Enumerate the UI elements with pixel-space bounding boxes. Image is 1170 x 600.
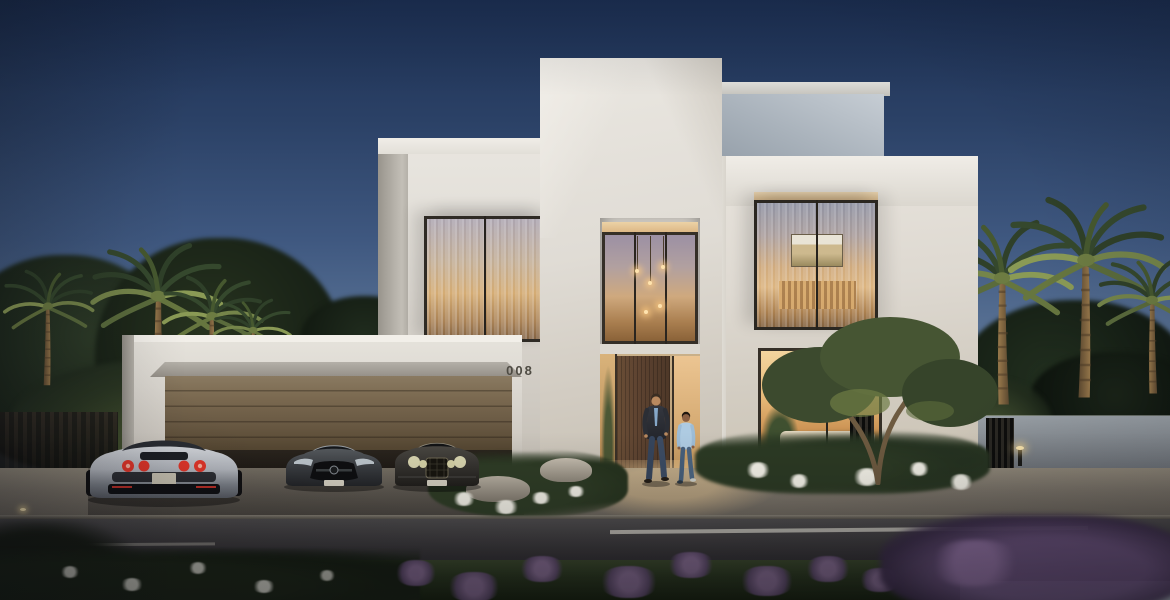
palm-tree xyxy=(1099,259,1170,393)
entrance-soffit-glow xyxy=(602,222,698,232)
villa-dusk-scene: 008 xyxy=(0,0,1170,600)
left-wing-window xyxy=(424,216,544,342)
window-mullion xyxy=(816,200,818,330)
purple-flower-cluster xyxy=(600,566,658,598)
white-flower-cluster xyxy=(188,562,208,574)
purple-flower-cluster xyxy=(740,566,794,596)
entrance-tall-window xyxy=(602,232,698,344)
palm-tree xyxy=(5,271,93,385)
dark-sedan-car xyxy=(390,430,484,492)
olive-tree xyxy=(760,315,1000,485)
white-flower-cluster xyxy=(60,566,80,578)
bollard-light-glow xyxy=(1016,446,1024,450)
landscape-rock xyxy=(540,458,592,482)
purple-flower-cluster xyxy=(520,556,564,582)
purple-flower-cluster xyxy=(448,572,500,600)
pendant-light xyxy=(650,236,651,282)
spandrel-band xyxy=(600,344,700,354)
purple-flower-cluster xyxy=(396,560,436,586)
house-number: 008 xyxy=(498,362,542,380)
white-flower-cluster xyxy=(492,500,520,514)
man-figure xyxy=(644,394,669,484)
garage-parapet xyxy=(122,335,522,342)
path-light xyxy=(20,508,26,511)
white-flower-cluster xyxy=(318,570,336,581)
right-wing-upper-window xyxy=(754,200,878,330)
pendant-light xyxy=(637,236,638,270)
garage-opening-bevel xyxy=(150,362,522,377)
purple-flower-cluster xyxy=(806,556,850,582)
white-flower-cluster xyxy=(530,492,552,504)
purple-flower-highlight xyxy=(930,540,1020,586)
purple-flower-cluster xyxy=(668,552,714,578)
entrance-sidelight-left xyxy=(600,354,617,472)
window-mullion xyxy=(665,232,667,344)
people-walking xyxy=(634,392,710,488)
left-wing-parapet xyxy=(378,138,558,154)
boy-figure xyxy=(677,412,696,484)
white-flower-cluster xyxy=(252,580,276,593)
dark-roadster-car xyxy=(280,430,388,492)
silver-sports-car xyxy=(82,420,247,508)
purple-flower-mass-right xyxy=(880,515,1170,600)
white-flower-cluster xyxy=(566,486,586,497)
window-mullion xyxy=(484,216,486,342)
light-reflection xyxy=(658,304,662,308)
white-flower-cluster xyxy=(120,578,144,591)
bollard-light xyxy=(1018,448,1022,466)
white-flower-cluster xyxy=(452,492,476,506)
pendant-light xyxy=(663,236,664,266)
window-mullion xyxy=(634,232,636,344)
